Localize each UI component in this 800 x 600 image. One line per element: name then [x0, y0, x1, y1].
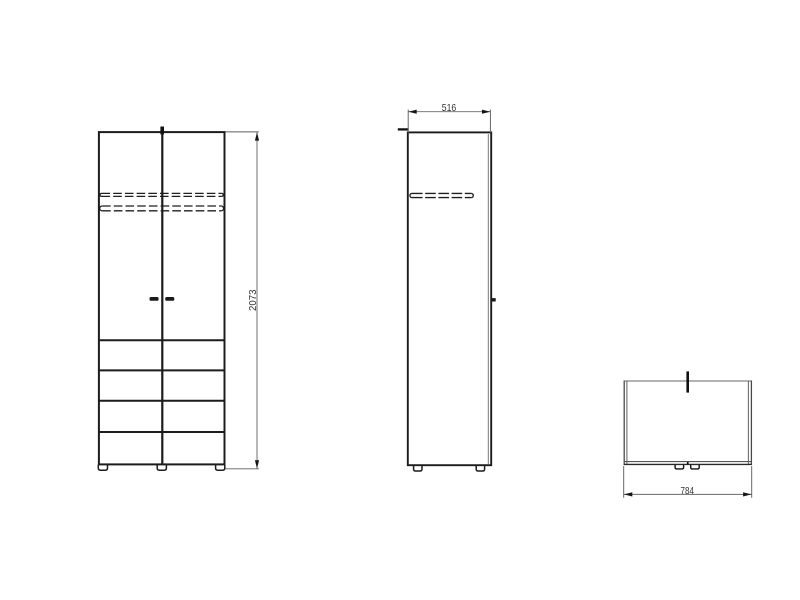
svg-text:2073: 2073 [248, 289, 259, 311]
svg-text:516: 516 [442, 103, 457, 114]
svg-text:784: 784 [680, 486, 694, 497]
